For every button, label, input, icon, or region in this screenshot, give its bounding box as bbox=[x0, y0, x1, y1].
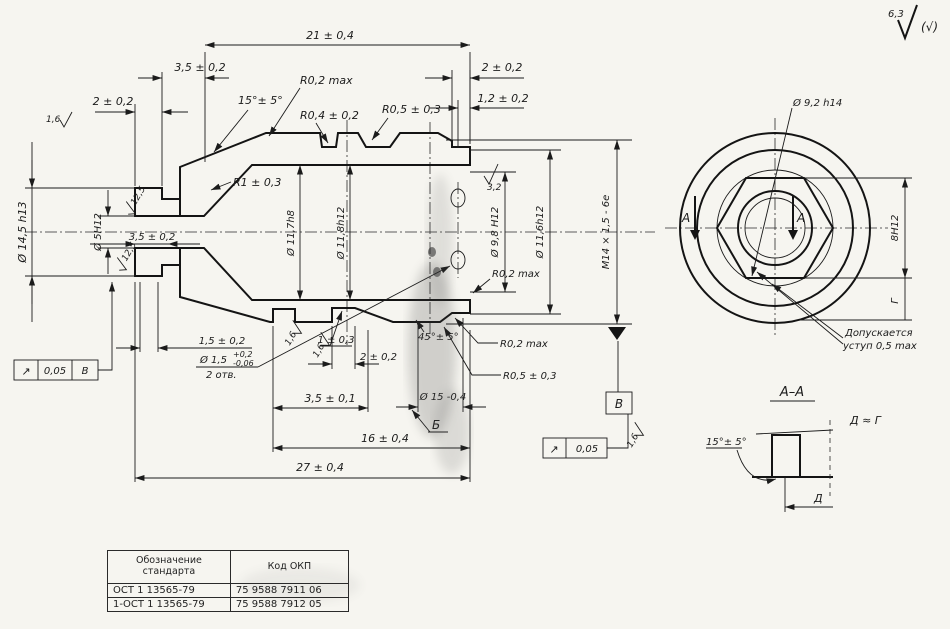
section-cut-marks: А А bbox=[681, 196, 805, 240]
section-aa-view: А–А 15°± 5° Д ≈ Г Д bbox=[706, 385, 882, 512]
engineering-drawing-canvas: 21 ± 0,4 3,5 ± 0,2 2 ± 0,2 15°± 5° R0,2 … bbox=[0, 0, 950, 629]
dim-2-left-label: 2 ± 0,2 bbox=[93, 95, 134, 108]
standard-cell: 1-ОСТ 1 13565-79 bbox=[108, 598, 231, 612]
dim-35-bore-label: 3,5 ± 0,2 bbox=[129, 232, 176, 243]
section-letter-a: А bbox=[796, 211, 805, 225]
header-okp: Код ОКП bbox=[230, 551, 348, 584]
angle-15-label: 15°± 5° bbox=[238, 94, 283, 107]
datum-ref-v: В bbox=[82, 366, 89, 377]
dim-d-label: Д bbox=[813, 492, 823, 505]
svg-text:1,6: 1,6 bbox=[46, 115, 61, 125]
svg-text:1,6: 1,6 bbox=[283, 330, 299, 348]
hole-count-label: 2 отв. bbox=[206, 370, 237, 381]
hole-dia-label: Ø 1,5 bbox=[199, 354, 227, 366]
okp-cell: 75 9588 7911 06 bbox=[230, 584, 348, 598]
hex-af-label: 8Н12 bbox=[890, 215, 901, 242]
dia-92-label: Ø 9,2 h14 bbox=[792, 97, 842, 109]
runout-symbol: ↗ bbox=[21, 365, 30, 378]
dim-g-label: Г bbox=[890, 297, 901, 304]
dimensions-bottom: 1,5 ± 0,2 Ø 1,5 +0,2 -0,06 2 отв. 1 ± 0,… bbox=[116, 266, 647, 482]
dim-21-label: 21 ± 0,4 bbox=[306, 29, 354, 42]
r1-label: R1 ± 0,3 bbox=[233, 176, 281, 189]
dia-98-label: Ø 9,8 Н12 bbox=[489, 207, 501, 258]
section-angle-label: 15°± 5° bbox=[706, 437, 747, 448]
r05-low-label: R0,5 ± 0,3 bbox=[503, 371, 557, 382]
thread-label: М14 × 1,5 - 6е bbox=[601, 195, 612, 269]
header-standard-line1: Обозначение bbox=[136, 555, 202, 566]
datum-triangle bbox=[608, 327, 626, 340]
dia-118-label: Ø 11,8h12 bbox=[335, 207, 347, 260]
r02-top-label: R0,2 max bbox=[300, 74, 353, 87]
dia-5-label: Ø 5Н12 bbox=[92, 213, 104, 252]
roughness-16-mark: 1,6 bbox=[623, 422, 647, 450]
header-standard: Обозначение стандарта bbox=[108, 551, 231, 584]
table-row: 1-ОСТ 1 13565-79 75 9588 7912 05 bbox=[108, 598, 349, 612]
photocopy-stains bbox=[240, 174, 470, 603]
dim-16-label: 16 ± 0,4 bbox=[361, 432, 409, 445]
table-header-row: Обозначение стандарта Код ОКП bbox=[108, 551, 349, 584]
dia-117-label: Ø 11,7h8 bbox=[285, 210, 297, 257]
okp-cell: 75 9588 7912 05 bbox=[230, 598, 348, 612]
section-title: А–А bbox=[779, 385, 804, 400]
r02-mid-label: R0,2 max bbox=[492, 269, 540, 280]
header-standard-line2: стандарта bbox=[143, 566, 196, 577]
runout-symbol: ↗ bbox=[549, 443, 558, 456]
r02-low-label: R0,2 max bbox=[500, 339, 548, 350]
dimensions-top: 21 ± 0,4 3,5 ± 0,2 2 ± 0,2 15°± 5° R0,2 … bbox=[93, 29, 529, 186]
step-note-line1: Допускается bbox=[844, 328, 913, 339]
roughness-16-mark: 1,6 bbox=[46, 112, 72, 127]
standard-cell: ОСТ 1 13565-79 bbox=[108, 584, 231, 598]
dia-145-label: Ø 14,5 h13 bbox=[16, 201, 29, 263]
dim-2-right-label: 2 ± 0,2 bbox=[482, 61, 523, 74]
dim-15-low-label: 1,5 ± 0,2 bbox=[199, 336, 246, 347]
section-letter-a: А bbox=[681, 211, 690, 225]
general-roughness-mark: 6,3 (√) bbox=[888, 5, 938, 38]
hole-tol-upper: +0,2 bbox=[233, 350, 252, 359]
d-approx-g-note: Д ≈ Г bbox=[849, 414, 882, 427]
tolerance-value: 0,05 bbox=[576, 444, 598, 455]
table-row: ОСТ 1 13565-79 75 9588 7911 06 bbox=[108, 584, 349, 598]
groove-depth-label: 1 ± 0,3 bbox=[317, 335, 354, 346]
groove-width-label: 2 ± 0,2 bbox=[360, 352, 397, 363]
dia-116-label: Ø 11,6h12 bbox=[534, 206, 546, 259]
dim-12-label: 1,2 ± 0,2 bbox=[477, 92, 528, 105]
end-view: Ø 9,2 h14 А А 8Н12 Г Допускается уступ 0… bbox=[665, 97, 917, 352]
general-roughness-paren: (√) bbox=[921, 20, 938, 34]
standards-table: Обозначение стандарта Код ОКП ОСТ 1 1356… bbox=[107, 550, 349, 612]
svg-text:3,2: 3,2 bbox=[487, 183, 502, 193]
datum-v-label: В bbox=[615, 397, 623, 411]
general-roughness-value: 6,3 bbox=[888, 9, 904, 20]
dim-27-label: 27 ± 0,4 bbox=[296, 461, 344, 474]
tolerance-value: 0,05 bbox=[44, 366, 66, 377]
dim-35-bot-label: 3,5 ± 0,1 bbox=[304, 392, 355, 405]
tolerance-frames: ↗ 0,05 В ↗ 0,05 В bbox=[14, 282, 632, 458]
drawing-sheet: 21 ± 0,4 3,5 ± 0,2 2 ± 0,2 15°± 5° R0,2 … bbox=[0, 0, 950, 629]
r04-label: R0,4 ± 0,2 bbox=[300, 109, 359, 122]
roughness-32-mark: 3,2 bbox=[484, 164, 502, 193]
dim-35-top-label: 3,5 ± 0,2 bbox=[174, 61, 225, 74]
step-note-line2: уступ 0,5 max bbox=[842, 341, 917, 352]
r05-top-label: R0,5 ± 0,3 bbox=[382, 103, 441, 116]
main-view: 21 ± 0,4 3,5 ± 0,2 2 ± 0,2 15°± 5° R0,2 … bbox=[14, 29, 655, 482]
